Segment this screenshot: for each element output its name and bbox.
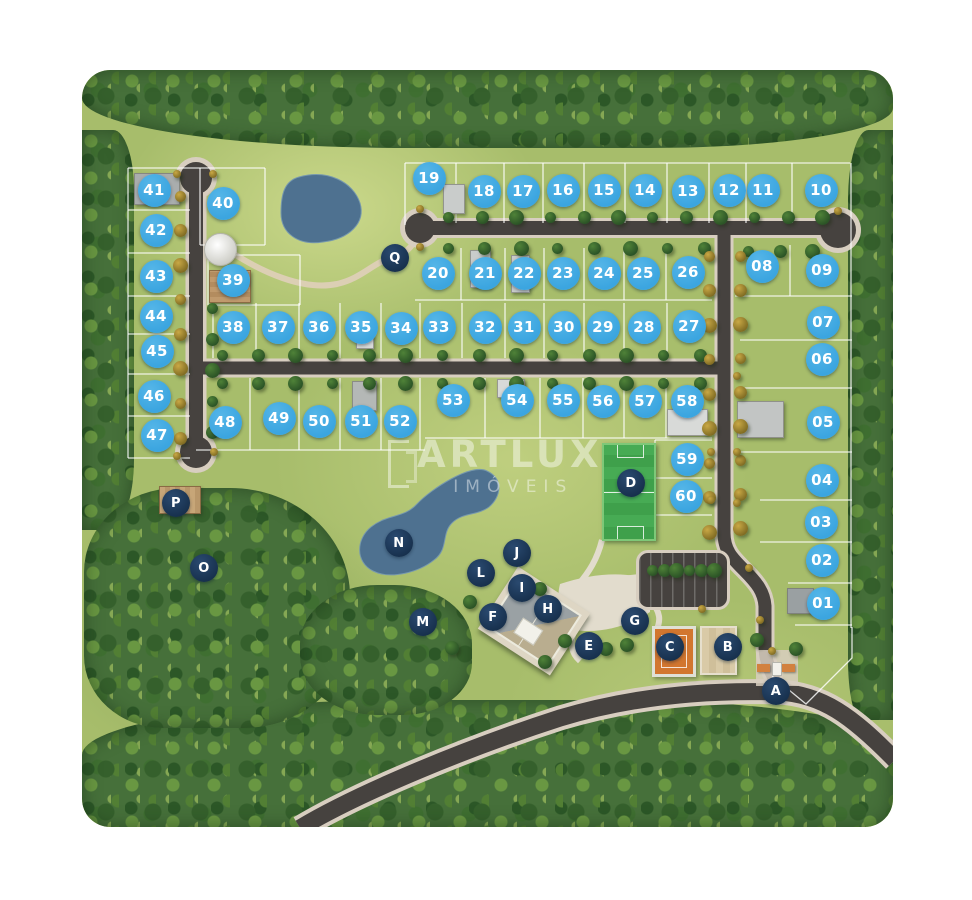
tree-icon (473, 349, 486, 362)
lot-marker-43[interactable]: 43 (140, 260, 173, 293)
lot-marker-16[interactable]: 16 (547, 174, 580, 207)
lot-marker-05[interactable]: 05 (807, 406, 840, 439)
golden-tree-icon (210, 448, 218, 456)
lot-marker-40[interactable]: 40 (207, 187, 240, 220)
lot-marker-06[interactable]: 06 (806, 343, 839, 376)
lot-marker-21[interactable]: 21 (469, 257, 502, 290)
tree-icon (445, 641, 459, 655)
lot-marker-18[interactable]: 18 (468, 175, 501, 208)
lot-marker-31[interactable]: 31 (508, 311, 541, 344)
golden-tree-icon (173, 170, 181, 178)
golden-tree-icon (173, 361, 188, 376)
golden-tree-icon (707, 496, 715, 504)
golden-tree-icon (768, 647, 776, 655)
tree-icon (288, 376, 303, 391)
tree-icon (620, 638, 634, 652)
lot-marker-53[interactable]: 53 (437, 384, 470, 417)
lot-marker-51[interactable]: 51 (345, 405, 378, 438)
tree-icon (662, 243, 673, 254)
tree-icon (514, 241, 529, 256)
golden-tree-icon (735, 251, 746, 262)
golden-tree-icon (209, 170, 217, 178)
tree-icon (398, 348, 413, 363)
golden-tree-icon (175, 191, 186, 202)
lot-marker-30[interactable]: 30 (548, 311, 581, 344)
tree-icon (252, 349, 265, 362)
lot-marker-47[interactable]: 47 (141, 419, 174, 452)
model-house (443, 184, 465, 214)
tree-icon (750, 633, 764, 647)
tree-icon (547, 350, 558, 361)
golden-tree-icon (756, 616, 764, 624)
lot-marker-13[interactable]: 13 (672, 175, 705, 208)
amenity-marker-I[interactable]: I (508, 574, 536, 602)
parking-lot (636, 550, 730, 610)
lot-marker-54[interactable]: 54 (501, 384, 534, 417)
tree-icon (205, 363, 220, 378)
golden-tree-icon (733, 419, 748, 434)
tree-icon (588, 242, 601, 255)
tree-icon (749, 212, 760, 223)
lot-marker-22[interactable]: 22 (508, 257, 541, 290)
golden-tree-icon (745, 564, 753, 572)
amenity-marker-O[interactable]: O (190, 554, 218, 582)
golden-tree-icon (175, 398, 186, 409)
lot-marker-27[interactable]: 27 (673, 310, 706, 343)
lot-marker-35[interactable]: 35 (345, 311, 378, 344)
golden-tree-icon (704, 458, 715, 469)
lot-marker-38[interactable]: 38 (217, 311, 250, 344)
tree-icon (327, 378, 338, 389)
lot-marker-25[interactable]: 25 (627, 257, 660, 290)
lot-marker-55[interactable]: 55 (547, 384, 580, 417)
tree-icon (288, 348, 303, 363)
lot-marker-08[interactable]: 08 (746, 250, 779, 283)
amenity-marker-L[interactable]: L (467, 559, 495, 587)
lot-marker-57[interactable]: 57 (629, 385, 662, 418)
tree-icon (443, 212, 454, 223)
lot-marker-29[interactable]: 29 (587, 311, 620, 344)
golden-tree-icon (734, 386, 747, 399)
tree-icon (669, 563, 684, 578)
amenity-marker-C[interactable]: C (656, 633, 684, 661)
lot-marker-45[interactable]: 45 (141, 335, 174, 368)
tree-icon (619, 376, 634, 391)
amenity-marker-J[interactable]: J (503, 539, 531, 567)
tree-icon (207, 396, 218, 407)
tree-icon (658, 350, 669, 361)
golden-tree-icon (416, 205, 424, 213)
tree-icon (815, 210, 830, 225)
lot-marker-41[interactable]: 41 (138, 174, 171, 207)
amenity-marker-N[interactable]: N (385, 529, 413, 557)
amenity-marker-B[interactable]: B (714, 633, 742, 661)
lot-marker-34[interactable]: 34 (385, 312, 418, 345)
lot-marker-50[interactable]: 50 (303, 405, 336, 438)
lot-marker-46[interactable]: 46 (138, 380, 171, 413)
lot-marker-01[interactable]: 01 (807, 587, 840, 620)
tree-icon (473, 377, 486, 390)
amenity-marker-Q[interactable]: Q (381, 244, 409, 272)
golden-tree-icon (698, 605, 706, 613)
golden-tree-icon (174, 432, 187, 445)
tree-icon (713, 210, 728, 225)
tree-icon (538, 655, 552, 669)
lot-marker-10[interactable]: 10 (805, 174, 838, 207)
tree-icon (398, 376, 413, 391)
golden-tree-icon (734, 284, 747, 297)
golden-tree-icon (733, 372, 741, 380)
tree-icon (583, 349, 596, 362)
tree-icon (327, 350, 338, 361)
tree-icon (206, 333, 219, 346)
tree-icon (545, 212, 556, 223)
tree-icon (476, 211, 489, 224)
amenity-marker-F[interactable]: F (479, 603, 507, 631)
amenity-marker-G[interactable]: G (621, 607, 649, 635)
lot-marker-33[interactable]: 33 (423, 311, 456, 344)
amenity-marker-A[interactable]: A (762, 677, 790, 705)
entrance-gate (757, 662, 795, 674)
golden-tree-icon (703, 284, 716, 297)
tree-icon (647, 565, 658, 576)
lot-marker-44[interactable]: 44 (140, 300, 173, 333)
lot-marker-17[interactable]: 17 (507, 175, 540, 208)
tree-icon (552, 243, 563, 254)
lot-marker-14[interactable]: 14 (629, 174, 662, 207)
golden-tree-icon (733, 499, 741, 507)
tree-icon (437, 350, 448, 361)
tree-icon (217, 350, 228, 361)
masterplan-page: 0102030405060708091011121314151617181920… (0, 0, 972, 900)
golden-tree-icon (704, 251, 715, 262)
lot-marker-12[interactable]: 12 (713, 174, 746, 207)
golden-tree-icon (173, 258, 188, 273)
tree-icon (217, 378, 228, 389)
lot-marker-11[interactable]: 11 (747, 174, 780, 207)
golden-tree-icon (704, 354, 715, 365)
golden-tree-icon (175, 294, 186, 305)
lot-marker-58[interactable]: 58 (671, 385, 704, 418)
golden-tree-icon (702, 525, 717, 540)
lot-marker-52[interactable]: 52 (384, 405, 417, 438)
golden-tree-icon (416, 243, 424, 251)
event-dome (204, 233, 237, 266)
golden-tree-icon (733, 317, 748, 332)
lot-marker-26[interactable]: 26 (672, 256, 705, 289)
tree-icon (207, 303, 218, 314)
tree-icon (252, 377, 265, 390)
tree-icon (623, 241, 638, 256)
tree-icon (509, 210, 524, 225)
tree-icon (680, 211, 693, 224)
lot-marker-42[interactable]: 42 (140, 214, 173, 247)
lot-marker-23[interactable]: 23 (547, 257, 580, 290)
lot-marker-56[interactable]: 56 (587, 385, 620, 418)
lot-marker-15[interactable]: 15 (588, 174, 621, 207)
golden-tree-icon (735, 353, 746, 364)
golden-tree-icon (707, 448, 715, 456)
golden-tree-icon (173, 452, 181, 460)
lot-marker-48[interactable]: 48 (209, 406, 242, 439)
lot-marker-07[interactable]: 07 (807, 306, 840, 339)
lot-marker-49[interactable]: 49 (263, 402, 296, 435)
tree-icon (363, 349, 376, 362)
lot-marker-09[interactable]: 09 (806, 254, 839, 287)
tree-icon (478, 242, 491, 255)
lot-marker-20[interactable]: 20 (422, 257, 455, 290)
lot-marker-19[interactable]: 19 (413, 162, 446, 195)
golden-tree-icon (702, 421, 717, 436)
lot-marker-24[interactable]: 24 (588, 257, 621, 290)
tree-icon (789, 642, 803, 656)
lot-marker-04[interactable]: 04 (806, 464, 839, 497)
lot-marker-03[interactable]: 03 (805, 506, 838, 539)
lot-marker-59[interactable]: 59 (671, 443, 704, 476)
lot-marker-02[interactable]: 02 (806, 544, 839, 577)
tree-icon (611, 210, 626, 225)
amenity-marker-E[interactable]: E (575, 632, 603, 660)
tree-icon (684, 565, 695, 576)
tree-icon (443, 243, 454, 254)
golden-tree-icon (834, 207, 842, 215)
amenity-marker-H[interactable]: H (534, 595, 562, 623)
site-plan-map: 0102030405060708091011121314151617181920… (82, 70, 893, 827)
tree-icon (658, 378, 669, 389)
lot-marker-36[interactable]: 36 (303, 311, 336, 344)
tree-icon (558, 634, 572, 648)
tree-icon (578, 211, 591, 224)
amenity-marker-P[interactable]: P (162, 489, 190, 517)
lot-marker-60[interactable]: 60 (670, 480, 703, 513)
amenity-marker-D[interactable]: D (617, 469, 645, 497)
golden-tree-icon (733, 448, 741, 456)
amenity-marker-M[interactable]: M (409, 608, 437, 636)
tree-icon (509, 348, 524, 363)
lot-marker-37[interactable]: 37 (262, 311, 295, 344)
tree-icon (363, 377, 376, 390)
tree-icon (782, 211, 795, 224)
lot-marker-28[interactable]: 28 (628, 311, 661, 344)
golden-tree-icon (735, 455, 746, 466)
tree-icon (463, 595, 477, 609)
golden-tree-icon (174, 224, 187, 237)
golden-tree-icon (733, 521, 748, 536)
tree-icon (619, 348, 634, 363)
lot-marker-32[interactable]: 32 (469, 311, 502, 344)
lot-marker-39[interactable]: 39 (217, 264, 250, 297)
tree-icon (707, 563, 722, 578)
tree-icon (647, 212, 658, 223)
golden-tree-icon (703, 388, 716, 401)
golden-tree-icon (174, 328, 187, 341)
